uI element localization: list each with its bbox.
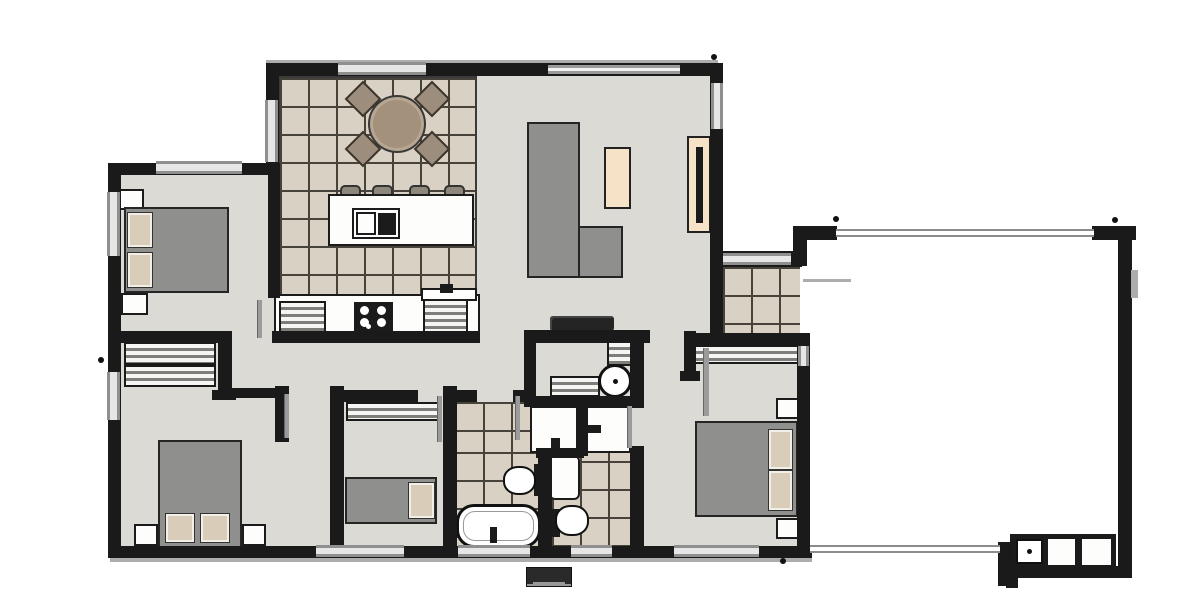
sofa-main	[527, 122, 580, 278]
wall-bath-ensuite	[538, 452, 552, 548]
window-bath-bottom	[458, 545, 530, 557]
wall-bed3-west	[330, 386, 344, 552]
window-bed2-left	[107, 372, 120, 420]
burner-2	[377, 306, 386, 315]
window-dining-top	[338, 62, 426, 75]
marker-dot-4	[780, 558, 786, 564]
window-master-east	[798, 346, 809, 366]
wall-master-top	[686, 333, 810, 346]
wall-ensuite-east-lower	[630, 446, 644, 552]
burner-4	[377, 318, 386, 327]
kitchen-tap	[440, 284, 453, 293]
entry-door	[723, 253, 791, 265]
sofa-chaise	[578, 226, 623, 278]
bed1-nightstand-bottom	[121, 293, 148, 315]
garage-notch	[1006, 578, 1018, 588]
bed3-robe	[346, 402, 442, 421]
garage-meter-bump	[1131, 270, 1138, 298]
door-leaf-bath	[515, 396, 520, 440]
garage-bench-1	[1046, 537, 1077, 567]
door-leaf-bed3	[437, 396, 442, 442]
hall-robe-lower	[124, 365, 216, 387]
tv	[696, 147, 703, 223]
door-leaf-master	[703, 348, 709, 416]
door-leaf-bed1	[257, 300, 262, 338]
window-ensuite-bottom	[571, 545, 612, 557]
marker-dot-3	[1112, 217, 1118, 223]
bed1-pillow-1	[128, 213, 152, 247]
window-dining-left	[265, 100, 278, 162]
wall-garage-right	[1118, 226, 1132, 578]
bed2-pillow-2	[201, 514, 229, 542]
kitchen-cabinet-right	[423, 299, 468, 333]
wall-bed3-north	[330, 390, 418, 402]
shadow-bottom	[110, 558, 812, 562]
bed2-nightstand-left	[134, 524, 158, 546]
bed3-pillow	[409, 483, 434, 518]
island-sink-drainer	[378, 213, 396, 235]
garage-post-nw-b	[793, 226, 807, 266]
wall-garage-bottom	[1000, 566, 1132, 578]
garage-sink	[1016, 539, 1043, 564]
bed1-pillow-2	[128, 253, 152, 287]
window-living-right	[711, 83, 723, 129]
bathtub-tap	[490, 527, 497, 543]
laundry-shelf	[550, 376, 600, 397]
wall-master-east	[797, 335, 810, 558]
garage-roof-line	[836, 229, 1094, 237]
bed2-pillow-1	[166, 514, 194, 542]
bathtub	[456, 504, 541, 548]
door-leaf-ensuite	[627, 406, 632, 448]
master-pillow-1	[769, 430, 792, 469]
garage-eave-line	[803, 279, 851, 282]
entry-porch-tiles	[723, 267, 800, 335]
wall-ensuite-east-upper	[630, 330, 644, 408]
washing-machine	[598, 364, 632, 398]
window-bed1-left	[107, 192, 120, 256]
garage-door-track	[810, 545, 1000, 553]
floor-plan	[0, 0, 1200, 597]
hall-robe-upper	[124, 342, 216, 365]
wall-bed1-east	[268, 173, 280, 298]
cooktop	[354, 302, 393, 333]
glazing-living-top	[548, 65, 680, 74]
island-sink-basin	[356, 212, 376, 235]
kitchen-cabinet-left	[279, 301, 326, 333]
wall-bed1-bottom	[116, 331, 232, 343]
shower	[549, 455, 580, 500]
bath-toilet	[503, 466, 536, 495]
marker-dot-1	[711, 54, 717, 60]
laundry-appliance	[550, 316, 614, 331]
door-leaf-bed2	[284, 394, 289, 438]
wall-kitchen-bottom	[272, 331, 480, 343]
window-bed1-top	[156, 161, 242, 174]
island-bench	[328, 194, 474, 246]
meter-box	[526, 567, 572, 587]
laundry-pantry	[607, 341, 632, 366]
window-bed3-bottom	[316, 545, 404, 557]
marker-dot-5	[98, 357, 104, 363]
wall-bed3-east	[443, 386, 457, 552]
ensuite-toilet	[555, 505, 589, 536]
master-robe	[694, 345, 802, 364]
ensuite-vanity-tap	[586, 425, 601, 433]
wall-bath-north-left	[455, 390, 477, 402]
master-pillow-2	[769, 471, 792, 510]
garage-bench-2	[1080, 537, 1113, 567]
coffee-table	[604, 147, 631, 209]
burner-1	[360, 306, 369, 315]
window-master-bottom	[674, 545, 759, 557]
bed2-nightstand-right	[242, 524, 266, 546]
wall-nook-east	[218, 331, 232, 394]
burner-5	[366, 324, 371, 329]
dining-table	[368, 95, 426, 153]
cap-master-stub	[680, 371, 700, 381]
marker-dot-2	[833, 216, 839, 222]
